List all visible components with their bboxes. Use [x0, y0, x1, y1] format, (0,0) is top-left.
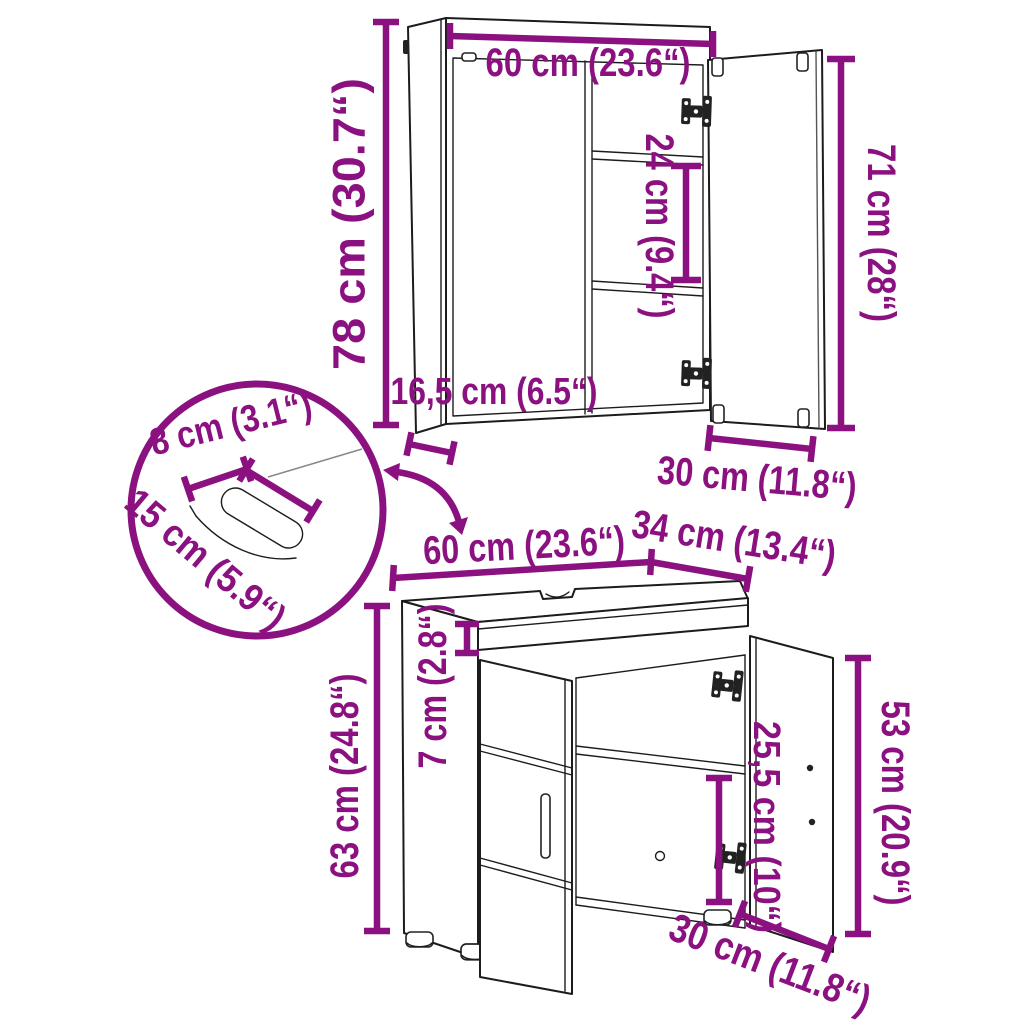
hinge-icon [711, 668, 744, 702]
door-handle [541, 794, 550, 858]
dimension-cabinet-height: 63 cm (24.8“) [323, 606, 390, 931]
dimension-cabinet-door-height: 53 cm (20.9“) [845, 658, 917, 934]
cabinet-apron-label: 7 cm (2.8“) [411, 604, 455, 769]
mirror-shelf-spacing-label: 24 cm (9.4“) [637, 134, 681, 319]
detail-leader-line [268, 449, 362, 477]
cutout-width-label: 8 cm (3.1“) [146, 384, 316, 465]
dimension-mirror-height: 78 cm (30.7“) [324, 22, 400, 425]
dimension-mirror-door-width: 30 cm (11.8“) [655, 425, 858, 510]
dimension-cabinet-depth: 34 cm (13.4“) [629, 502, 839, 592]
furniture-dimension-diagram: 60 cm (23.6“) 78 cm (30.7“) 24 cm (9.4“)… [0, 0, 1024, 1024]
mirror-width-label: 60 cm (23.6“) [486, 41, 691, 85]
back-panel-hole [656, 852, 665, 861]
mirror-depth-label: 16,5 cm (6.5“) [391, 371, 598, 413]
wall-bracket-icon [403, 40, 409, 54]
mirror-height-label: 78 cm (30.7“) [324, 78, 375, 370]
sink-cabinet-left-door [480, 660, 572, 994]
dimension-cabinet-interior: 25,5 cm (10“) [706, 721, 787, 933]
cabinet-interior-label: 25,5 cm (10“) [745, 721, 787, 933]
foot-icon [406, 932, 433, 947]
mounting-tab-icon [462, 53, 476, 61]
cabinet-height-label: 63 cm (24.8“) [323, 674, 367, 879]
detail-curved-arrow [383, 463, 468, 535]
dimension-cabinet-width: 60 cm (23.6“) [392, 519, 652, 591]
mirror-door-width-label: 30 cm (11.8“) [655, 448, 858, 509]
dimension-mirror-door-height: 71 cm (28“) [827, 59, 903, 428]
mirror-cabinet-open-door [708, 50, 825, 429]
mirror-door-height-label: 71 cm (28“) [859, 144, 903, 322]
diagram-canvas: 60 cm (23.6“) 78 cm (30.7“) 24 cm (9.4“)… [0, 0, 1024, 1024]
cabinet-door-height-label: 53 cm (20.9“) [873, 701, 917, 906]
dimension-cutout-width: 8 cm (3.1“) [146, 384, 316, 502]
dimension-cutout-length: 15 cm (5.9“) [116, 459, 319, 639]
top-cutout-arc [546, 592, 569, 597]
